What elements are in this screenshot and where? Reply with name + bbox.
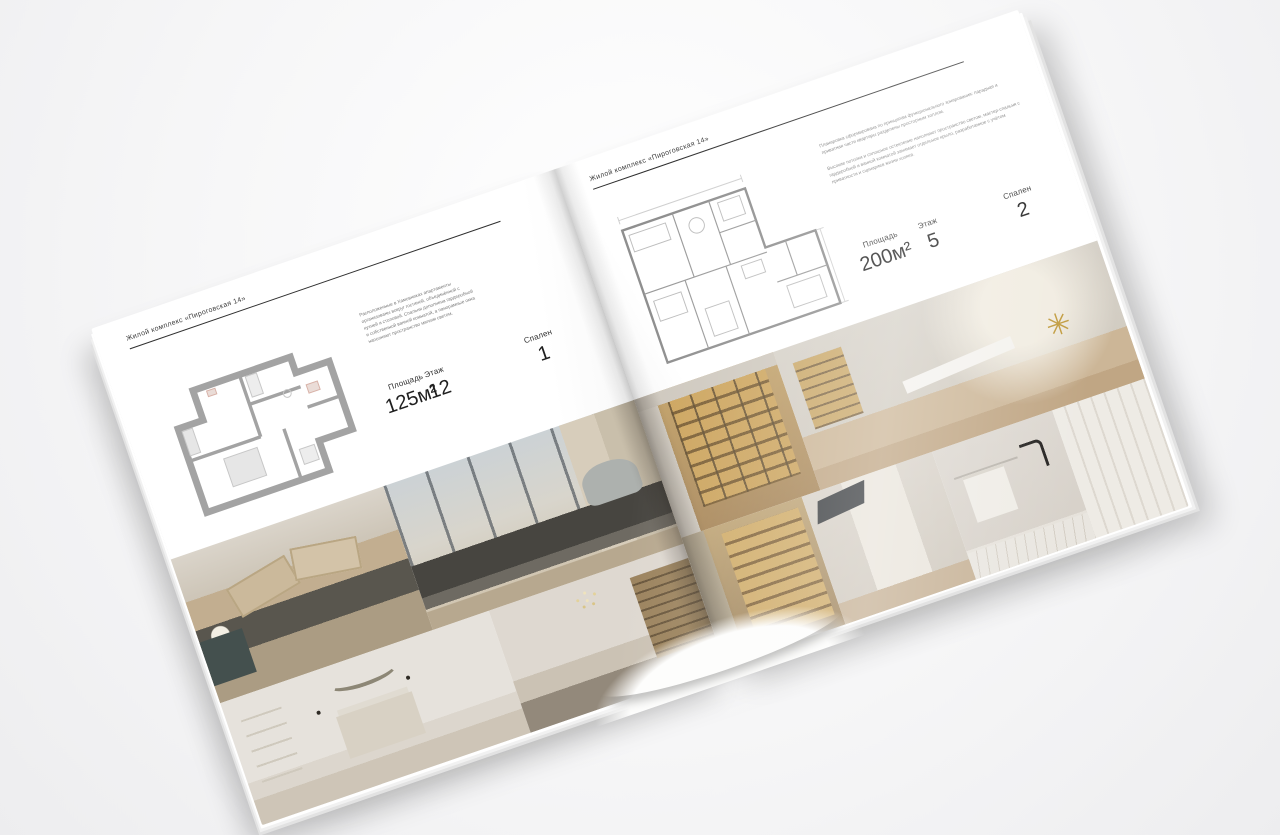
marble-counter bbox=[967, 513, 1096, 580]
left-page-description: Расположенные в Хамовниках апартаменты о… bbox=[359, 275, 481, 346]
bed bbox=[336, 692, 426, 759]
stat-floor: Этаж 5 bbox=[893, 208, 971, 264]
armchair bbox=[577, 452, 645, 508]
brochure-mockup-scene: Жилой комплекс «Пироговская 14» Располож… bbox=[0, 0, 1280, 835]
chandelier bbox=[582, 591, 586, 595]
magazine-spread: Жилой комплекс «Пироговская 14» Располож… bbox=[91, 10, 1189, 825]
sputnik-lamp-icon: ✳ bbox=[1042, 307, 1076, 344]
teal-nightstand bbox=[199, 628, 256, 686]
stat-bedrooms: Спален 1 bbox=[503, 321, 581, 377]
desk bbox=[902, 336, 1014, 394]
stat-bedrooms: Спален 2 bbox=[983, 177, 1061, 233]
pillow bbox=[289, 536, 362, 582]
pillow bbox=[226, 555, 301, 618]
stat-floor: Этаж 12 bbox=[399, 356, 477, 412]
wall-sconce bbox=[316, 710, 321, 715]
black-faucet bbox=[1018, 438, 1049, 474]
